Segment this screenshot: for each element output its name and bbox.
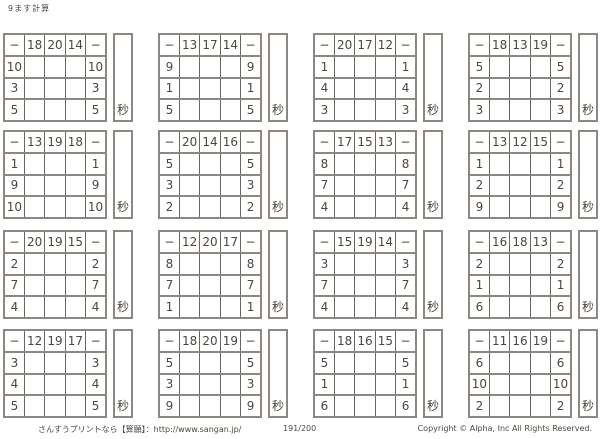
answer-cell bbox=[510, 78, 530, 100]
time-box: 秒 bbox=[268, 130, 288, 219]
answer-cell bbox=[24, 78, 44, 100]
subtrahend-cell: 4 bbox=[396, 296, 416, 318]
answer-cell bbox=[179, 395, 199, 417]
header-row: −182019− bbox=[159, 330, 261, 352]
subtrahend-cell: 7 bbox=[396, 175, 416, 197]
operator-cell: − bbox=[314, 34, 334, 56]
operator-cell: − bbox=[469, 131, 489, 153]
subtrahend-cell: 3 bbox=[469, 99, 489, 121]
seconds-label: 秒 bbox=[117, 101, 129, 118]
seconds-label: 秒 bbox=[272, 101, 284, 118]
minuend-cell: 19 bbox=[220, 330, 240, 352]
answer-cell bbox=[24, 296, 44, 318]
answer-cell bbox=[489, 153, 509, 175]
calc-group: −171513−887744秒 bbox=[313, 130, 443, 219]
subtrahend-cell: 5 bbox=[241, 153, 261, 175]
minuend-cell: 12 bbox=[179, 231, 199, 253]
minuend-cell: 19 bbox=[530, 34, 550, 56]
seconds-label: 秒 bbox=[272, 298, 284, 315]
answer-cell bbox=[375, 296, 395, 318]
answer-cell bbox=[220, 352, 240, 374]
answer-cell bbox=[489, 352, 509, 374]
subtrahend-cell: 6 bbox=[396, 395, 416, 417]
answer-cell bbox=[375, 175, 395, 197]
calc-group: −182019−553399秒 bbox=[158, 329, 288, 418]
answer-cell bbox=[530, 175, 550, 197]
answer-cell bbox=[530, 196, 550, 218]
operator-cell: − bbox=[241, 330, 261, 352]
operator-cell: − bbox=[469, 34, 489, 56]
subtrahend-cell: 5 bbox=[159, 153, 179, 175]
answer-cell bbox=[45, 56, 65, 78]
subtrahend-cell: 8 bbox=[314, 153, 334, 175]
answer-cell bbox=[375, 56, 395, 78]
minuend-cell: 15 bbox=[355, 131, 375, 153]
answer-cell bbox=[220, 395, 240, 417]
subtrahend-cell: 3 bbox=[314, 253, 334, 275]
minuend-cell: 17 bbox=[65, 330, 85, 352]
minuend-cell: 17 bbox=[334, 131, 354, 153]
answer-cell bbox=[220, 296, 240, 318]
answer-cell bbox=[200, 153, 220, 175]
operator-cell: − bbox=[314, 330, 334, 352]
answer-cell bbox=[375, 352, 395, 374]
answer-cell bbox=[200, 99, 220, 121]
subtrahend-cell: 7 bbox=[241, 275, 261, 297]
subtrahend-cell: 7 bbox=[396, 275, 416, 297]
header-row: −131918− bbox=[4, 131, 106, 153]
minuend-cell: 13 bbox=[375, 131, 395, 153]
answer-cell bbox=[179, 78, 199, 100]
calc-row: 55 bbox=[159, 153, 261, 175]
minuend-cell: 15 bbox=[375, 330, 395, 352]
header-row: −131714− bbox=[159, 34, 261, 56]
seconds-label: 秒 bbox=[582, 101, 594, 118]
answer-cell bbox=[334, 56, 354, 78]
operator-cell: − bbox=[396, 131, 416, 153]
operator-cell: − bbox=[469, 330, 489, 352]
minuend-cell: 19 bbox=[45, 131, 65, 153]
grid-row: −131918−11991010秒−201416−553322秒−171513−… bbox=[3, 130, 598, 219]
footer-site-link: さんすうプリントなら【算願】：http://www.sangan.jp/ bbox=[38, 424, 241, 435]
grid-row: −201915−227744秒−122017−887711秒−151914−33… bbox=[3, 230, 598, 319]
minuend-cell: 19 bbox=[45, 231, 65, 253]
subtrahend-cell: 2 bbox=[159, 196, 179, 218]
minuend-cell: 20 bbox=[334, 34, 354, 56]
minuend-cell: 20 bbox=[24, 231, 44, 253]
seconds-label: 秒 bbox=[582, 198, 594, 215]
operator-cell: − bbox=[396, 34, 416, 56]
answer-cell bbox=[220, 196, 240, 218]
answer-cell bbox=[24, 153, 44, 175]
minuend-cell: 18 bbox=[489, 34, 509, 56]
answer-cell bbox=[220, 374, 240, 396]
answer-cell bbox=[489, 196, 509, 218]
time-box: 秒 bbox=[423, 33, 443, 122]
time-box: 秒 bbox=[113, 230, 133, 319]
calc-group: −161813−221166秒 bbox=[468, 230, 598, 319]
minuend-cell: 16 bbox=[510, 330, 530, 352]
subtrahend-cell: 7 bbox=[314, 175, 334, 197]
subtrahend-cell: 10 bbox=[469, 374, 489, 396]
subtrahend-cell: 9 bbox=[86, 175, 106, 197]
operator-cell: − bbox=[551, 231, 571, 253]
answer-cell bbox=[200, 352, 220, 374]
calc-table: −121917−334455 bbox=[3, 329, 107, 418]
answer-cell bbox=[355, 352, 375, 374]
minuend-cell: 12 bbox=[375, 34, 395, 56]
subtrahend-cell: 3 bbox=[159, 175, 179, 197]
subtrahend-cell: 3 bbox=[551, 99, 571, 121]
subtrahend-cell: 1 bbox=[314, 56, 334, 78]
calc-group: −131918−11991010秒 bbox=[3, 130, 133, 219]
answer-cell bbox=[530, 395, 550, 417]
calc-row: 33 bbox=[4, 352, 106, 374]
subtrahend-cell: 2 bbox=[551, 175, 571, 197]
seconds-label: 秒 bbox=[582, 397, 594, 414]
subtrahend-cell: 5 bbox=[159, 352, 179, 374]
seconds-label: 秒 bbox=[117, 397, 129, 414]
subtrahend-cell: 2 bbox=[241, 196, 261, 218]
calc-row: 22 bbox=[469, 395, 571, 417]
time-box: 秒 bbox=[423, 230, 443, 319]
calc-group: −111619−66101022秒 bbox=[468, 329, 598, 418]
time-box: 秒 bbox=[578, 329, 598, 418]
subtrahend-cell: 10 bbox=[86, 56, 106, 78]
answer-cell bbox=[65, 78, 85, 100]
subtrahend-cell: 9 bbox=[241, 56, 261, 78]
minuend-cell: 17 bbox=[200, 34, 220, 56]
answer-cell bbox=[179, 56, 199, 78]
answer-cell bbox=[510, 352, 530, 374]
answer-cell bbox=[334, 175, 354, 197]
subtrahend-cell: 3 bbox=[4, 78, 24, 100]
subtrahend-cell: 1 bbox=[469, 275, 489, 297]
answer-cell bbox=[489, 296, 509, 318]
calc-row: 99 bbox=[159, 56, 261, 78]
calc-table: −151914−337744 bbox=[313, 230, 417, 319]
answer-cell bbox=[334, 196, 354, 218]
answer-cell bbox=[510, 374, 530, 396]
answer-cell bbox=[45, 99, 65, 121]
calc-table: −182019−553399 bbox=[158, 329, 262, 418]
calc-row: 33 bbox=[314, 99, 416, 121]
operator-cell: − bbox=[159, 231, 179, 253]
answer-cell bbox=[375, 153, 395, 175]
minuend-cell: 18 bbox=[65, 131, 85, 153]
time-box: 秒 bbox=[578, 230, 598, 319]
answer-cell bbox=[24, 175, 44, 197]
calc-row: 77 bbox=[4, 275, 106, 297]
calc-row: 55 bbox=[159, 352, 261, 374]
minuend-cell: 13 bbox=[489, 131, 509, 153]
calc-row: 55 bbox=[469, 56, 571, 78]
answer-cell bbox=[45, 153, 65, 175]
time-box: 秒 bbox=[268, 33, 288, 122]
answer-cell bbox=[355, 99, 375, 121]
calc-group: −201416−553322秒 bbox=[158, 130, 288, 219]
operator-cell: − bbox=[159, 34, 179, 56]
seconds-label: 秒 bbox=[427, 298, 439, 315]
calc-table: −181615−551166 bbox=[313, 329, 417, 418]
answer-cell bbox=[334, 78, 354, 100]
answer-cell bbox=[530, 296, 550, 318]
subtrahend-cell: 5 bbox=[551, 56, 571, 78]
subtrahend-cell: 5 bbox=[86, 395, 106, 417]
answer-cell bbox=[65, 275, 85, 297]
subtrahend-cell: 4 bbox=[4, 296, 24, 318]
subtrahend-cell: 1 bbox=[159, 296, 179, 318]
subtrahend-cell: 4 bbox=[86, 374, 106, 396]
operator-cell: − bbox=[469, 231, 489, 253]
answer-cell bbox=[510, 196, 530, 218]
minuend-cell: 20 bbox=[45, 34, 65, 56]
calc-row: 11 bbox=[314, 56, 416, 78]
calc-row: 22 bbox=[159, 196, 261, 218]
time-box: 秒 bbox=[113, 33, 133, 122]
calc-row: 33 bbox=[314, 253, 416, 275]
calc-row: 44 bbox=[4, 374, 106, 396]
calc-row: 11 bbox=[469, 153, 571, 175]
operator-cell: − bbox=[241, 34, 261, 56]
minuend-cell: 18 bbox=[334, 330, 354, 352]
minuend-cell: 17 bbox=[220, 231, 240, 253]
operator-cell: − bbox=[159, 131, 179, 153]
calc-row: 33 bbox=[159, 175, 261, 197]
subtrahend-cell: 5 bbox=[314, 352, 334, 374]
answer-cell bbox=[200, 78, 220, 100]
subtrahend-cell: 2 bbox=[4, 253, 24, 275]
answer-cell bbox=[24, 352, 44, 374]
answer-cell bbox=[179, 352, 199, 374]
minuend-cell: 14 bbox=[220, 34, 240, 56]
seconds-label: 秒 bbox=[427, 397, 439, 414]
answer-cell bbox=[510, 56, 530, 78]
header-row: −161813− bbox=[469, 231, 571, 253]
calc-row: 22 bbox=[469, 175, 571, 197]
calc-row: 99 bbox=[4, 175, 106, 197]
answer-cell bbox=[200, 196, 220, 218]
minuend-cell: 18 bbox=[510, 231, 530, 253]
answer-cell bbox=[45, 78, 65, 100]
subtrahend-cell: 10 bbox=[551, 374, 571, 396]
minuend-cell: 12 bbox=[24, 330, 44, 352]
answer-cell bbox=[65, 352, 85, 374]
seconds-label: 秒 bbox=[427, 101, 439, 118]
header-row: −182014− bbox=[4, 34, 106, 56]
calc-table: −201712−114433 bbox=[313, 33, 417, 122]
answer-cell bbox=[510, 175, 530, 197]
subtrahend-cell: 3 bbox=[396, 253, 416, 275]
calc-row: 77 bbox=[314, 275, 416, 297]
answer-cell bbox=[334, 352, 354, 374]
minuend-cell: 18 bbox=[24, 34, 44, 56]
subtrahend-cell: 1 bbox=[551, 153, 571, 175]
answer-cell bbox=[530, 374, 550, 396]
subtrahend-cell: 10 bbox=[4, 56, 24, 78]
answer-cell bbox=[355, 56, 375, 78]
seconds-label: 秒 bbox=[582, 298, 594, 315]
answer-cell bbox=[375, 395, 395, 417]
grid-row: −121917−334455秒−182019−553399秒−181615−55… bbox=[3, 329, 598, 418]
answer-cell bbox=[24, 374, 44, 396]
operator-cell: − bbox=[551, 131, 571, 153]
answer-cell bbox=[510, 296, 530, 318]
operator-cell: − bbox=[86, 330, 106, 352]
subtrahend-cell: 1 bbox=[396, 374, 416, 396]
calc-table: −201915−227744 bbox=[3, 230, 107, 319]
answer-cell bbox=[489, 56, 509, 78]
minuend-cell: 15 bbox=[530, 131, 550, 153]
subtrahend-cell: 5 bbox=[469, 56, 489, 78]
subtrahend-cell: 9 bbox=[241, 395, 261, 417]
subtrahend-cell: 4 bbox=[314, 78, 334, 100]
time-box: 秒 bbox=[578, 130, 598, 219]
answer-cell bbox=[220, 253, 240, 275]
answer-cell bbox=[489, 374, 509, 396]
subtrahend-cell: 1 bbox=[396, 56, 416, 78]
calc-row: 1010 bbox=[4, 196, 106, 218]
answer-cell bbox=[220, 175, 240, 197]
subtrahend-cell: 5 bbox=[4, 99, 24, 121]
subtrahend-cell: 6 bbox=[314, 395, 334, 417]
operator-cell: − bbox=[4, 330, 24, 352]
header-row: −151914− bbox=[314, 231, 416, 253]
calc-group: −201712−114433秒 bbox=[313, 33, 443, 122]
calc-group: −151914−337744秒 bbox=[313, 230, 443, 319]
worksheet-page: 9ます計算 −182014−10103355秒−131714−991155秒−2… bbox=[0, 0, 600, 439]
subtrahend-cell: 9 bbox=[159, 56, 179, 78]
minuend-cell: 18 bbox=[179, 330, 199, 352]
subtrahend-cell: 2 bbox=[469, 175, 489, 197]
answer-cell bbox=[375, 78, 395, 100]
calc-row: 44 bbox=[314, 296, 416, 318]
answer-cell bbox=[510, 275, 530, 297]
minuend-cell: 14 bbox=[65, 34, 85, 56]
subtrahend-cell: 1 bbox=[4, 153, 24, 175]
answer-cell bbox=[375, 253, 395, 275]
answer-cell bbox=[355, 78, 375, 100]
answer-cell bbox=[334, 99, 354, 121]
answer-cell bbox=[65, 296, 85, 318]
answer-cell bbox=[65, 253, 85, 275]
time-box: 秒 bbox=[268, 329, 288, 418]
answer-cell bbox=[355, 153, 375, 175]
answer-cell bbox=[45, 175, 65, 197]
seconds-label: 秒 bbox=[117, 198, 129, 215]
minuend-cell: 13 bbox=[510, 34, 530, 56]
subtrahend-cell: 1 bbox=[159, 78, 179, 100]
answer-cell bbox=[200, 253, 220, 275]
subtrahend-cell: 6 bbox=[469, 352, 489, 374]
subtrahend-cell: 7 bbox=[86, 275, 106, 297]
subtrahend-cell: 10 bbox=[86, 196, 106, 218]
answer-cell bbox=[510, 153, 530, 175]
calc-group: −181319−552233秒 bbox=[468, 33, 598, 122]
subtrahend-cell: 4 bbox=[396, 196, 416, 218]
subtrahend-cell: 9 bbox=[159, 395, 179, 417]
answer-cell bbox=[355, 196, 375, 218]
calc-row: 11 bbox=[159, 296, 261, 318]
answer-cell bbox=[24, 99, 44, 121]
calc-row: 55 bbox=[4, 395, 106, 417]
answer-cell bbox=[334, 275, 354, 297]
subtrahend-cell: 1 bbox=[469, 153, 489, 175]
operator-cell: − bbox=[241, 231, 261, 253]
time-box: 秒 bbox=[578, 33, 598, 122]
calc-row: 11 bbox=[4, 153, 106, 175]
answer-cell bbox=[510, 253, 530, 275]
subtrahend-cell: 5 bbox=[396, 352, 416, 374]
header-row: −121917− bbox=[4, 330, 106, 352]
answer-cell bbox=[65, 99, 85, 121]
calc-row: 11 bbox=[469, 275, 571, 297]
answer-cell bbox=[355, 175, 375, 197]
answer-cell bbox=[489, 395, 509, 417]
subtrahend-cell: 3 bbox=[86, 352, 106, 374]
answer-cell bbox=[530, 78, 550, 100]
operator-cell: − bbox=[159, 330, 179, 352]
subtrahend-cell: 1 bbox=[314, 374, 334, 396]
calc-table: −181319−552233 bbox=[468, 33, 572, 122]
subtrahend-cell: 3 bbox=[159, 374, 179, 396]
answer-cell bbox=[530, 153, 550, 175]
minuend-cell: 14 bbox=[200, 131, 220, 153]
subtrahend-cell: 1 bbox=[241, 296, 261, 318]
subtrahend-cell: 4 bbox=[314, 296, 334, 318]
answer-cell bbox=[179, 153, 199, 175]
subtrahend-cell: 2 bbox=[86, 253, 106, 275]
calc-row: 55 bbox=[314, 352, 416, 374]
answer-cell bbox=[24, 253, 44, 275]
minuend-cell: 20 bbox=[200, 231, 220, 253]
header-row: −201915− bbox=[4, 231, 106, 253]
operator-cell: − bbox=[86, 231, 106, 253]
answer-cell bbox=[45, 374, 65, 396]
subtrahend-cell: 3 bbox=[241, 175, 261, 197]
minuend-cell: 13 bbox=[24, 131, 44, 153]
subtrahend-cell: 10 bbox=[4, 196, 24, 218]
answer-cell bbox=[375, 374, 395, 396]
answer-cell bbox=[334, 395, 354, 417]
answer-cell bbox=[179, 253, 199, 275]
calc-row: 1010 bbox=[469, 374, 571, 396]
subtrahend-cell: 3 bbox=[4, 352, 24, 374]
minuend-cell: 15 bbox=[334, 231, 354, 253]
calc-row: 66 bbox=[469, 352, 571, 374]
header-row: −181319− bbox=[469, 34, 571, 56]
seconds-label: 秒 bbox=[427, 198, 439, 215]
seconds-label: 秒 bbox=[272, 198, 284, 215]
calc-row: 66 bbox=[314, 395, 416, 417]
calc-row: 22 bbox=[469, 253, 571, 275]
calc-row: 55 bbox=[4, 99, 106, 121]
time-box: 秒 bbox=[268, 230, 288, 319]
answer-cell bbox=[530, 56, 550, 78]
operator-cell: − bbox=[314, 131, 334, 153]
minuend-cell: 17 bbox=[355, 34, 375, 56]
subtrahend-cell: 5 bbox=[86, 99, 106, 121]
answer-cell bbox=[200, 395, 220, 417]
answer-cell bbox=[510, 395, 530, 417]
minuend-cell: 16 bbox=[489, 231, 509, 253]
subtrahend-cell: 7 bbox=[314, 275, 334, 297]
answer-cell bbox=[530, 275, 550, 297]
calc-row: 33 bbox=[4, 78, 106, 100]
calc-group: −121917−334455秒 bbox=[3, 329, 133, 418]
answer-cell bbox=[65, 56, 85, 78]
calc-row: 11 bbox=[159, 78, 261, 100]
